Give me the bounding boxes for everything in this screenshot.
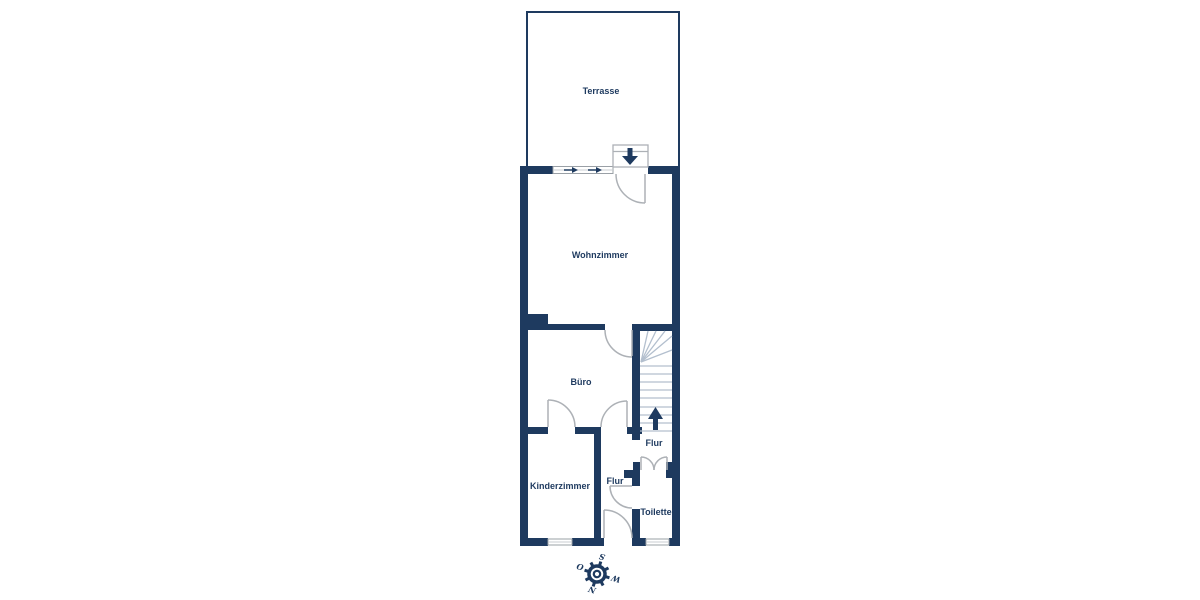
staircase [640, 331, 672, 431]
floor-plan-drawing: Terrasse Wohnzimmer Büro Kinderzimmer Fl… [0, 0, 1200, 600]
compass-rose-icon: S O W N [575, 551, 622, 596]
child-room-window [548, 539, 572, 545]
toilet-door [610, 486, 632, 508]
child-room-door [548, 400, 575, 427]
room-label-toilette: Toilette [640, 507, 671, 517]
room-label-buero: Büro [571, 377, 592, 387]
floor-plan-page: Terrasse Wohnzimmer Büro Kinderzimmer Fl… [0, 0, 1200, 600]
stairs-up-arrow-icon [648, 407, 663, 430]
room-label-terrasse: Terrasse [583, 86, 620, 96]
front-door [604, 510, 632, 538]
room-label-wohnzimmer: Wohnzimmer [572, 250, 629, 260]
terrace-window [553, 167, 613, 174]
entrance-door [613, 145, 648, 203]
office-door [601, 401, 627, 427]
room-label-flur-right: Flur [646, 438, 663, 448]
room-label-flur-middle: Flur [607, 476, 624, 486]
toilet-window [646, 539, 669, 545]
room-label-kinderzimmer: Kinderzimmer [530, 481, 591, 491]
compass-label-south: S [598, 551, 607, 562]
compass-label-north: N [586, 584, 598, 596]
compass-label-east: O [575, 561, 585, 573]
double-door [641, 457, 667, 470]
living-room-door [605, 330, 632, 357]
interior-walls [528, 314, 672, 538]
compass-label-west: W [609, 573, 621, 585]
